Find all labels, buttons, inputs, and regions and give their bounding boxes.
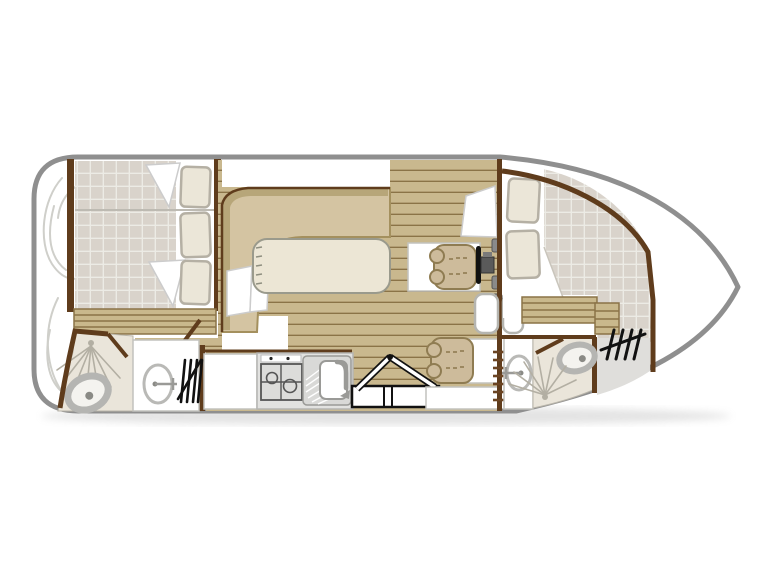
pillow [506, 230, 540, 278]
floor-plan-figure [0, 0, 768, 576]
aft-bathroom [498, 337, 598, 409]
sink-drainer-icon [303, 356, 351, 405]
companion-seat [427, 338, 473, 383]
side-deck-panel [222, 160, 390, 187]
main-bulkhead [497, 159, 502, 411]
boat-floor-plan [0, 0, 768, 576]
nav-seat-area [426, 338, 500, 409]
aft-steps-slats [522, 297, 597, 323]
galley [199, 345, 353, 411]
stove-icon [261, 355, 302, 400]
pillow [180, 167, 210, 208]
front-bathroom [57, 331, 202, 416]
cabinet [426, 387, 498, 409]
bench-cushion [227, 266, 252, 316]
dinette-table [253, 239, 390, 293]
pillow [180, 261, 210, 305]
pillow [507, 178, 540, 223]
fridge-cabinet [204, 354, 257, 409]
front-cabin-left-wall [67, 159, 74, 312]
front-cabin [67, 159, 221, 312]
pillow [180, 212, 211, 257]
helm-seat [430, 245, 476, 289]
deck-steps-slats [595, 303, 619, 334]
